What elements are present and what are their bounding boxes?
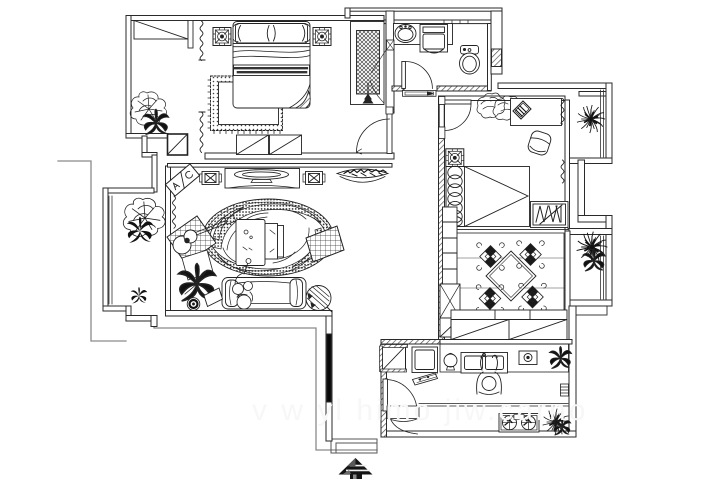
svg-text:v w yl himo jiw.carno: v w yl himo jiw.carno xyxy=(252,394,588,427)
